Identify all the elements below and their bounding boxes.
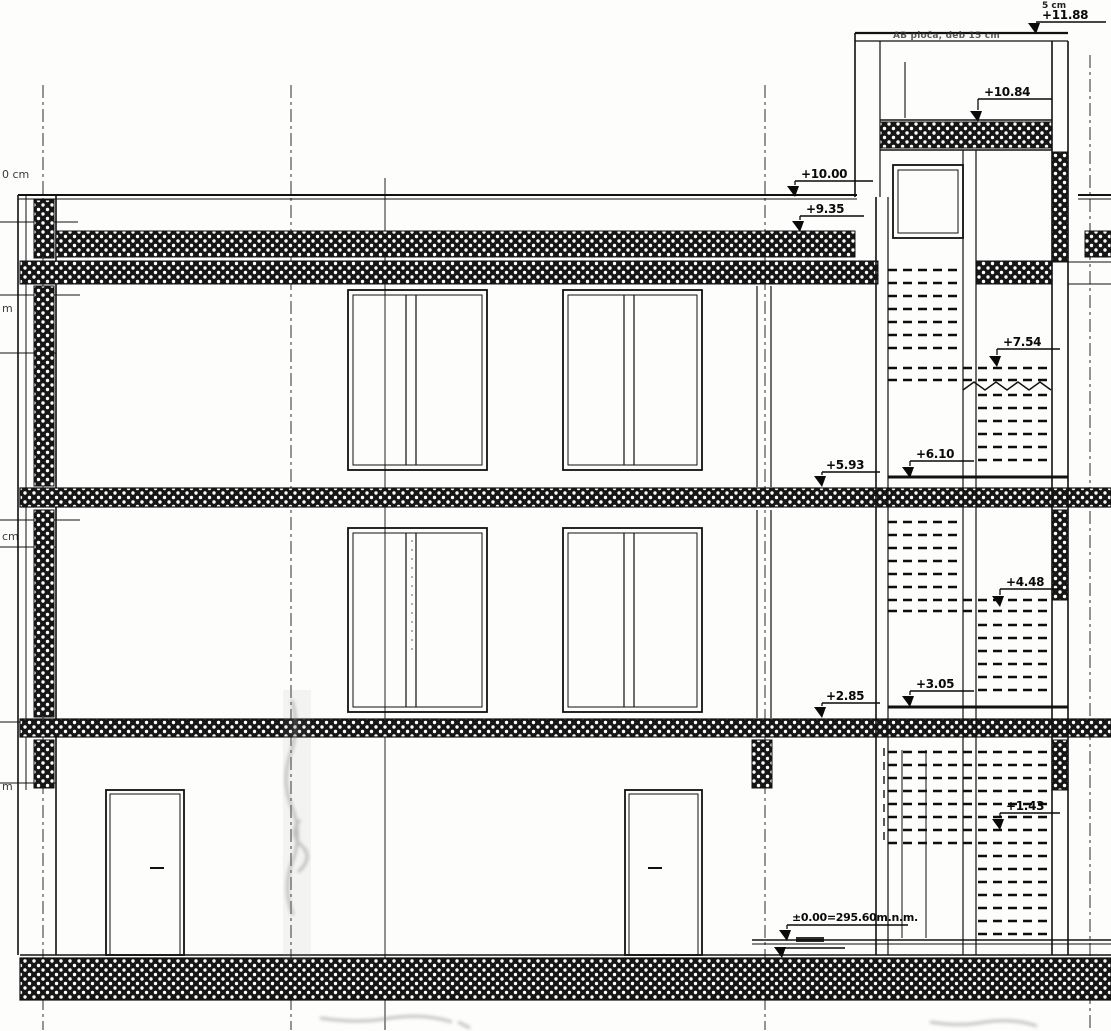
elevation-marker-tower-top: +11.88 5 cm	[1028, 1, 1106, 34]
elevation-marker-landing-4: +7.54	[989, 335, 1060, 367]
top-dimension-note: 5 cm	[1042, 1, 1066, 11]
elevation-marker-floor1-structural: +2.85	[814, 689, 880, 718]
elevation-label-floor2-structural: +5.93	[826, 458, 864, 472]
tower-slab-note: AB ploča, deb 15 cm	[893, 30, 1000, 41]
roof-ceiling-hatch-left	[20, 261, 878, 284]
window-floor2-left	[348, 290, 487, 470]
floor-1-slab	[20, 719, 1111, 737]
elevation-label-floor1-structural: +2.85	[826, 689, 864, 703]
tower-right-wall-hatch-1	[1052, 152, 1068, 262]
elevation-marker-roof-slab: +9.35	[792, 202, 864, 232]
margin-label-1: 0 cm	[2, 168, 29, 181]
stair-flights-dashed	[888, 270, 1048, 934]
shaft-landing-slab	[976, 261, 1052, 284]
elevation-marker-floor2-structural: +5.93	[814, 458, 880, 487]
margin-label-3: cm	[2, 530, 19, 543]
elevation-label-landing-4: +7.54	[1003, 335, 1041, 349]
elevation-marker-landing-1: +1.43	[992, 799, 1060, 830]
scan-streak	[283, 690, 311, 960]
elevation-marker-roof-top: +10.00	[787, 167, 873, 197]
interior-wall-pier-hatch	[752, 740, 772, 788]
foundation-slab-hatch	[20, 958, 1111, 1000]
elevation-marker-datum: ±0.00=295.60m.n.m.	[779, 911, 918, 941]
elevation-label-floor2: +6.10	[916, 447, 954, 461]
elevation-label-roof-top: +10.00	[801, 167, 847, 181]
elevation-label-landing-1: +1.43	[1006, 799, 1044, 813]
margin-label-2: m	[2, 302, 13, 315]
axis-grid-lines	[43, 55, 1090, 1030]
tower-right-wall-hatch-2	[1052, 510, 1068, 600]
roof-slab-hatch-right	[1085, 231, 1111, 257]
window-floor1-right	[563, 528, 702, 712]
window-floor2-right	[563, 290, 702, 470]
elevation-marker-tower-roof: +10.84	[970, 85, 1052, 122]
tower-right-wall-hatch-3	[1052, 740, 1068, 790]
door-left	[106, 790, 184, 955]
section-drawing: 0 cm m cm m	[0, 0, 1111, 1031]
elevation-label-roof-slab: +9.35	[806, 202, 844, 216]
main-roof	[18, 195, 1111, 284]
interior-wall-axis3	[752, 286, 772, 788]
illegible-text-smudge	[796, 937, 824, 942]
floor-slabs	[20, 477, 1111, 737]
elevation-label-landing-2: +4.48	[1006, 575, 1044, 589]
door-right	[625, 790, 702, 955]
floor-2-slab	[20, 488, 1111, 507]
window-floor1-left	[348, 528, 487, 712]
elevation-label-tower-roof: +10.84	[984, 85, 1030, 99]
tower-roof-slab-hatch	[880, 122, 1052, 148]
elevation-label-datum: ±0.00=295.60m.n.m.	[792, 911, 918, 924]
margin-label-4: m	[2, 780, 13, 793]
left-exterior-wall	[18, 195, 56, 955]
roof-slab-hatch-left	[56, 231, 855, 257]
elevation-label-floor1: +3.05	[916, 677, 954, 691]
section-drawing-sheet: 0 cm m cm m	[0, 0, 1111, 1031]
tower-window	[893, 165, 963, 238]
